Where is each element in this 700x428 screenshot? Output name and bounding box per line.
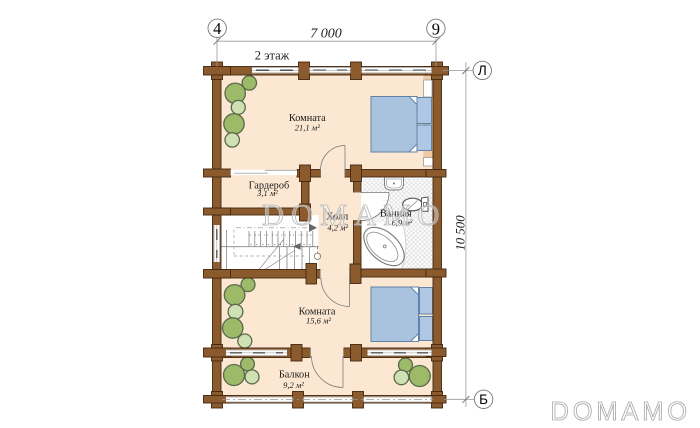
svg-text:7 000: 7 000	[310, 27, 342, 42]
svg-text:Л: Л	[478, 63, 487, 78]
svg-text:DOMAMO: DOMAMO	[551, 398, 691, 426]
svg-text:15,6 м²: 15,6 м²	[306, 316, 331, 326]
svg-text:Балкон: Балкон	[279, 370, 310, 381]
svg-text:9,2 м²: 9,2 м²	[283, 380, 304, 390]
svg-text:21,1 м²: 21,1 м²	[295, 122, 320, 132]
svg-text:9 10 11 12 13 14 15 16: 9 10 11 12 13 14 15 16	[250, 233, 312, 237]
svg-text:3,1 м²: 3,1 м²	[256, 188, 278, 198]
svg-text:10 500: 10 500	[454, 215, 468, 251]
svg-text:Б: Б	[479, 392, 488, 407]
svg-text:9: 9	[432, 19, 440, 38]
svg-text:4: 4	[213, 19, 221, 38]
svg-text:DOMAMO: DOMAMO	[262, 198, 446, 232]
svg-text:2 этаж: 2 этаж	[255, 49, 290, 63]
